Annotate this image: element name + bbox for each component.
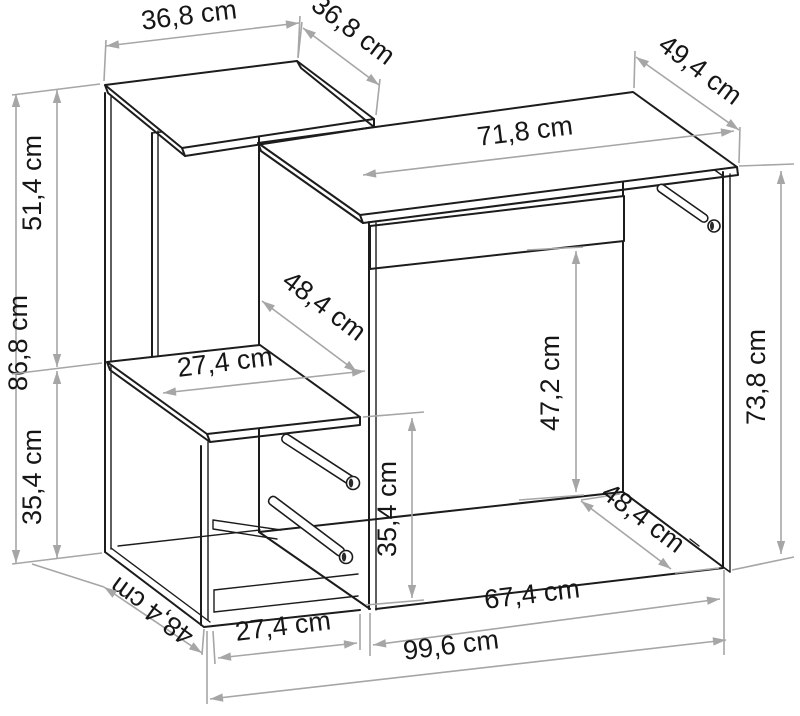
dimension-arrowhead: [53, 545, 61, 558]
dimension-arrowhead: [366, 74, 379, 85]
dimension-arrowhead: [777, 541, 785, 554]
dimension-arrowhead: [707, 597, 720, 605]
dimension-arrowhead: [53, 354, 61, 367]
dim-label-drawer-opening-height: 35,4 cm: [372, 461, 402, 557]
dim-label-knee-clearance-height: 47,2 cm: [535, 335, 565, 431]
drawer-slide-left-wall: [213, 520, 281, 539]
dim-label-left-upper-height: 51,4 cm: [17, 135, 47, 231]
dim-label-top-shelf-width: 36,8 cm: [139, 0, 238, 36]
dimension-arrowhead: [53, 90, 61, 103]
dim-label-left-lower-height: 35,4 cm: [17, 429, 47, 525]
dimension-arrowhead: [636, 57, 649, 68]
dim-label-cabinet-width: 27,4 cm: [233, 605, 332, 646]
dimension-arrowhead: [262, 301, 275, 312]
dimension-diagram-page: 36,8 cm 36,8 cm 49,4 cm 71,8 cm 86,8 cm …: [0, 0, 800, 716]
dimension-arrowhead: [53, 371, 61, 384]
dimension-arrowhead: [408, 418, 416, 431]
dim-label-overall-width: 99,6 cm: [401, 624, 500, 665]
dim-label-top-shelf-depth: 36,8 cm: [306, 0, 401, 71]
dimension-arrowhead: [286, 20, 299, 28]
dimension-arrowhead: [572, 251, 580, 264]
dimension-arrowhead: [12, 550, 20, 563]
dim-label-desk-side-depth: 48,4 cm: [596, 477, 691, 559]
dim-label-desktop-depth: 49,4 cm: [653, 29, 748, 111]
dimension-arrowhead: [344, 640, 357, 648]
furniture-dimension-drawing: 36,8 cm 36,8 cm 49,4 cm 71,8 cm 86,8 cm …: [0, 0, 800, 716]
dimension-arrowhead: [344, 361, 357, 372]
dimension-arrowhead: [721, 128, 734, 136]
dim-label-cabinet-bottom-depth: 48,4 cm: [104, 571, 199, 652]
dimension-arrowhead: [658, 558, 671, 569]
dim-label-knee-space-width: 67,4 cm: [482, 573, 581, 614]
dimension-arrowhead: [106, 40, 119, 48]
dimension-arrowhead: [581, 501, 594, 512]
dimension-arrowhead: [218, 652, 231, 660]
dimension-arrowhead: [210, 693, 223, 701]
dim-label-middle-section-depth: 48,4 cm: [277, 265, 372, 347]
dimension-arrowhead: [408, 585, 416, 598]
drawer-slide-upper: [280, 433, 359, 490]
support-bracket: [656, 183, 720, 232]
dim-label-desk-side-height: 73,8 cm: [741, 329, 771, 425]
dimension-arrowhead: [572, 479, 580, 492]
dimension-arrowhead: [303, 28, 316, 39]
dimension-arrowhead: [12, 94, 20, 107]
dimension-arrowhead: [777, 171, 785, 184]
dim-label-left-total-height: 86,8 cm: [3, 295, 33, 391]
foot-notch: [125, 567, 134, 574]
dimension-arrowhead: [189, 642, 202, 653]
dimension-arrowhead: [373, 639, 386, 647]
dimensions: 36,8 cm 36,8 cm 49,4 cm 71,8 cm 86,8 cm …: [3, 0, 794, 704]
dimension-arrowhead: [726, 119, 739, 130]
